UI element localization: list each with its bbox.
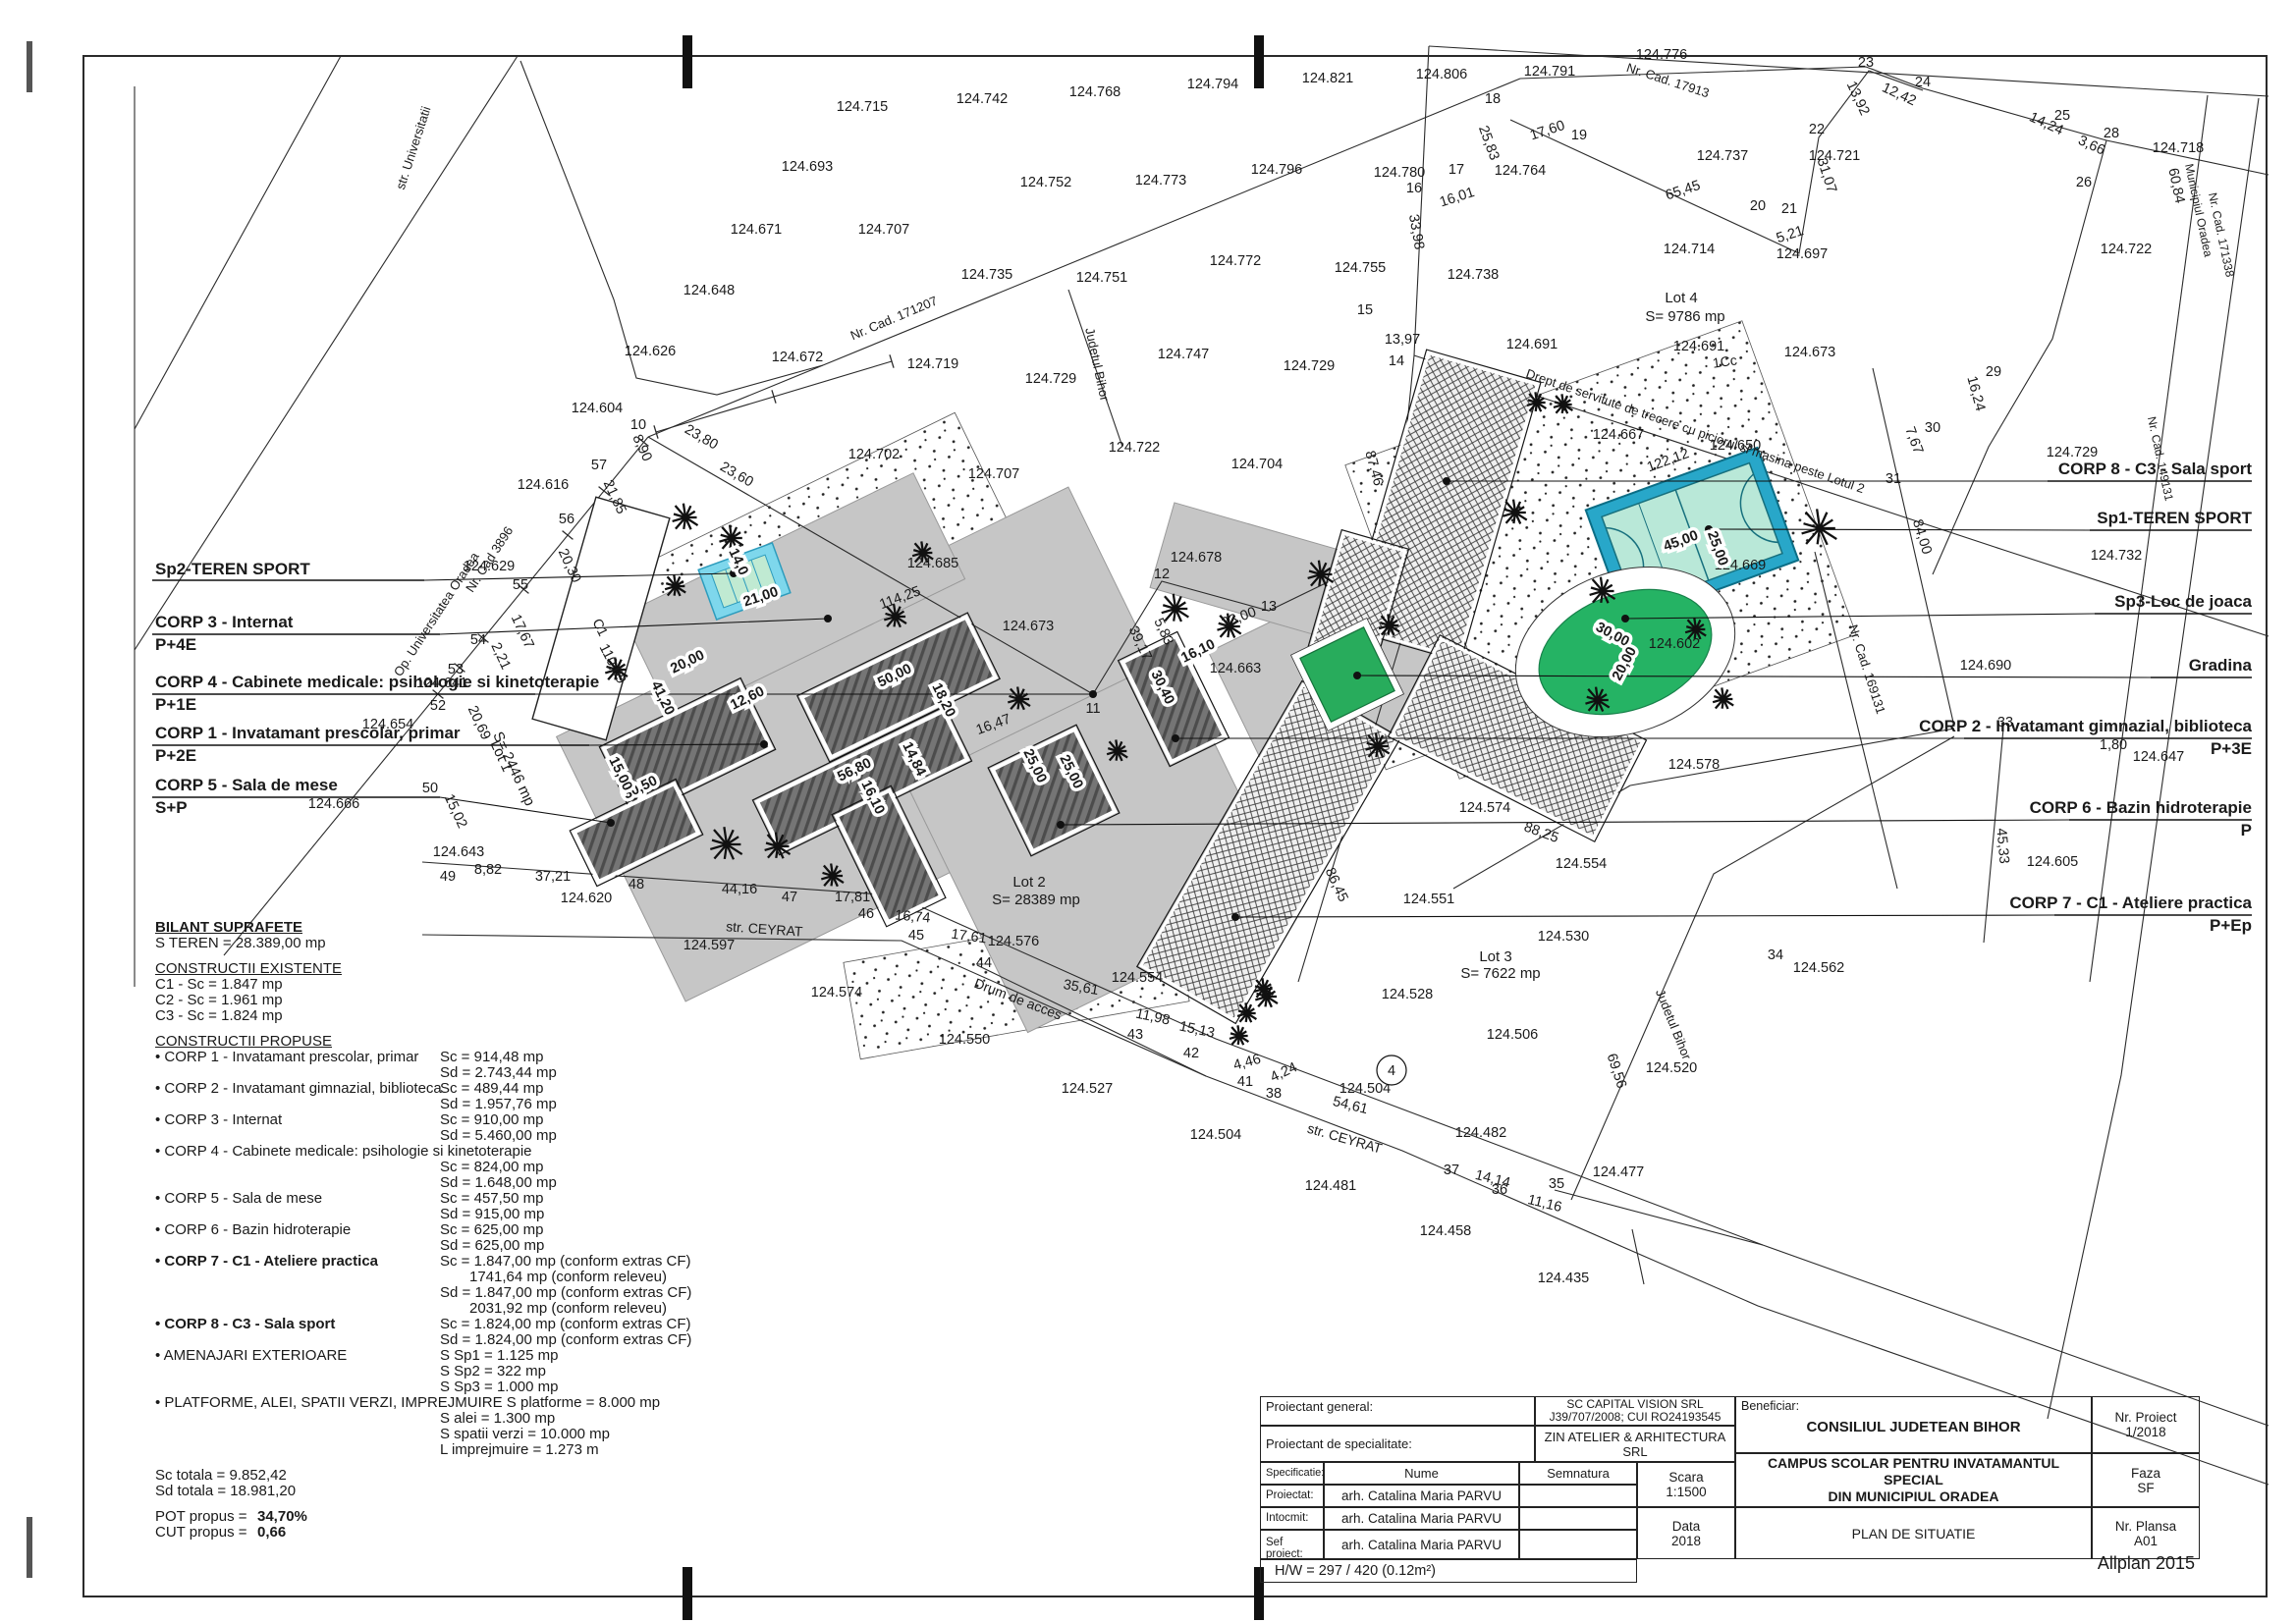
callout-label: CORP 5 - Sala de mese (155, 776, 338, 794)
callout-label: Gradina (2189, 656, 2253, 675)
boundary-point-label: 44 (976, 955, 992, 971)
callout-label: CORP 2 - Invatamant gimnazial, bibliotec… (1919, 717, 2252, 735)
dimension-label: 54,61 (1331, 1094, 1369, 1117)
leader-line (1235, 915, 2054, 917)
boundary-point-label: 56 (559, 512, 574, 527)
fold-mark (683, 1567, 692, 1620)
elevation-label: 124.764 (1495, 163, 1546, 179)
elevation-label: 124.722 (1109, 440, 1160, 456)
callout-sublabel: P+4E (155, 635, 196, 654)
elevation-label: 124.776 (1636, 47, 1687, 63)
dimension-label: 17,60 (1528, 118, 1566, 143)
scara-value: 1:1500 (1666, 1485, 1706, 1499)
elevation-label: 124.663 (1210, 661, 1261, 676)
callout-label: CORP 3 - Internat (155, 613, 294, 631)
elevation-label: 124.604 (572, 401, 623, 416)
dimension-label: 4,46 (1231, 1052, 1262, 1074)
callout-label: CORP 1 - Invatamant prescolar, primar (155, 724, 461, 742)
lot-label: S= 9786 mp (1645, 308, 1724, 325)
sef-proiect-name: arh. Catalina Maria PARVU (1324, 1530, 1519, 1559)
elevation-label: 124.602 (1649, 636, 1700, 652)
boundary-point-label: 11 (1085, 701, 1100, 717)
elevation-label: 124.691 (1673, 339, 1724, 354)
nr-proiect-cell: Nr. Proiect 1/2018 (2092, 1396, 2200, 1453)
boundary-point-label: 38 (1266, 1086, 1282, 1102)
elevation-label: 124.554 (1556, 856, 1607, 872)
lot-label: S= 28389 mp (992, 892, 1080, 908)
elevation-label: 124.506 (1487, 1027, 1538, 1043)
elevation-label: 124.772 (1210, 253, 1261, 269)
dimension-label: 44,16 (722, 882, 757, 897)
elevation-label: 124.806 (1416, 67, 1467, 82)
boundary-point-label: 46 (858, 906, 874, 922)
elevation-label: 124.707 (858, 222, 909, 238)
boundary-point-label: 53 (448, 662, 464, 677)
dimension-label: 7,67 (1901, 425, 1926, 457)
elevation-label: 124.576 (988, 934, 1039, 949)
elevation-label: 124.768 (1069, 84, 1121, 100)
survey-line (2090, 95, 2208, 982)
proiectant-spec-label: Proiectant de specialitate: (1260, 1426, 1535, 1462)
boundary-point-label: 19 (1571, 128, 1587, 143)
callout-sublabel: P (2241, 821, 2252, 839)
elevation-label: 124.752 (1020, 175, 1071, 190)
nr-proiect-value: 1/2018 (2125, 1425, 2165, 1439)
elevation-label: 124.704 (1231, 457, 1283, 472)
elevation-label: 124.719 (907, 356, 958, 372)
dimension-label: 15,13 (1177, 1018, 1216, 1041)
nr-proiect-label: Nr. Proiect (2114, 1410, 2176, 1425)
boundary-point-label: 13 (1261, 599, 1277, 615)
elevation-label: 124.641 (416, 676, 467, 691)
annotation-label: Judetul Bihor (1082, 326, 1113, 403)
survey-line (1815, 552, 1897, 889)
data-value: 2018 (1671, 1534, 1701, 1548)
nume-header: Nume (1324, 1462, 1519, 1485)
nr-plansa-label: Nr. Plansa (2115, 1519, 2176, 1534)
boundary-point-label: 35 (1549, 1176, 1564, 1192)
site-plan-drawing: Sp2-TEREN SPORTCORP 3 - InternatP+4ECORP… (0, 0, 2296, 1623)
specificatie-label: Specificatie: (1260, 1462, 1324, 1485)
dimension-label: 8,82 (474, 862, 502, 878)
elevation-label: 124.671 (731, 222, 782, 238)
nr-plansa-cell: Nr. Plansa A01 (2092, 1507, 2200, 1559)
leader-dot (1353, 672, 1361, 679)
semnatura-empty (1519, 1485, 1637, 1507)
allplan-watermark: Allplan 2015 (2003, 1553, 2195, 1574)
elevation-label: 124.729 (1284, 358, 1335, 374)
elevation-label: 124.780 (1374, 165, 1425, 181)
elevation-label: 124.504 (1190, 1127, 1241, 1143)
elevation-label: 124.562 (1793, 960, 1844, 976)
boundary-point-label: 34 (1768, 947, 1783, 963)
boundary-point-label: 33 (1997, 715, 2013, 730)
boundary-point-label: 17 (1449, 162, 1464, 178)
leader-dot (1443, 477, 1450, 485)
elevation-label: 124.773 (1135, 173, 1186, 189)
boundary-point-label: 37 (1444, 1163, 1459, 1178)
semnatura-header: Semnatura (1519, 1462, 1637, 1485)
elevation-label: 124.550 (939, 1032, 990, 1048)
boundary-point-label: 12 (1154, 567, 1170, 582)
boundary-point-label: 28 (2104, 126, 2119, 141)
annotation-label: Nr. Cad. 171207 (848, 293, 940, 343)
callout-sublabel: P+3E (2211, 739, 2252, 758)
beneficiar-name: CONSILIUL JUDETEAN BIHOR (1741, 1419, 2086, 1435)
fold-mark (1254, 35, 1264, 88)
dimension-label: 11,16 (1526, 1192, 1563, 1216)
elevation-label: 124.738 (1448, 267, 1499, 283)
elevation-label: 124.791 (1524, 64, 1575, 80)
boundary-point-label: 54 (470, 632, 486, 648)
proiectant-general-value: SC CAPITAL VISION SRL J39/707/2008; CUI … (1535, 1396, 1735, 1426)
boundary-point-label: 42 (1183, 1046, 1199, 1061)
boundary-point-label: 29 (1986, 364, 2001, 380)
boundary-point-label: 57 (591, 458, 607, 473)
annotation-label: Nr. Cad. 169131 (1846, 622, 1889, 716)
elevation-label: 124.578 (1668, 757, 1720, 773)
boundary-point-label: 23 (1858, 55, 1874, 71)
elevation-label: 124.527 (1062, 1081, 1113, 1097)
lot-label: S= 7622 mp (1460, 965, 1540, 982)
annotation-label: str. CEYRAT (1306, 1120, 1385, 1157)
company-reg: J39/707/2008; CUI RO24193545 (1550, 1411, 1722, 1424)
tree-icon (673, 504, 698, 530)
boundary-point-label: 18 (1485, 91, 1501, 107)
boundary-point-label: 15 (1357, 302, 1373, 318)
callout-sublabel: S+P (155, 798, 188, 817)
data-label: Data (1672, 1519, 1701, 1534)
elevation-label: 124.747 (1158, 347, 1209, 362)
elevation-label: 124.729 (1025, 371, 1076, 387)
elevation-label: 124.690 (1960, 658, 2011, 674)
annotation-label: Nr. Cad. 17913 (1624, 60, 1711, 100)
elevation-label: 124.654 (362, 717, 413, 732)
faza-value: SF (2137, 1481, 2154, 1495)
elevation-label: 124.729 (2047, 445, 2098, 460)
dimension-label: 37,21 (535, 869, 571, 885)
dimension-label: 16,74 (895, 907, 932, 926)
elevation-label: 124.482 (1455, 1125, 1506, 1141)
annotation-label: str. Universitatii (393, 104, 434, 191)
tree-icon (1713, 687, 1733, 709)
elevation-label: 124.821 (1302, 71, 1353, 86)
scan-artifact (27, 1517, 32, 1578)
boundary-point-label: 55 (513, 577, 528, 593)
elevation-label: 124.697 (1777, 246, 1828, 262)
elevation-label: 124.673 (1784, 345, 1835, 360)
boundary-point-label: 52 (430, 698, 446, 714)
elevation-label: 124.732 (2091, 548, 2142, 564)
boundary-point-label: 50 (422, 781, 438, 796)
boundary-point-label: 49 (440, 869, 456, 885)
boundary-point-label: 21 (1781, 201, 1797, 217)
scara-label: Scara (1668, 1470, 1703, 1485)
fold-mark (683, 35, 692, 88)
boundary-point-label: 24 (1915, 75, 1931, 90)
elevation-label: 124.643 (433, 844, 484, 860)
paper-size-label: H/W = 297 / 420 (0.12m²) (1260, 1559, 1637, 1583)
scan-artifact (27, 41, 32, 92)
elevation-label: 124.574 (811, 985, 862, 1001)
survey-line (135, 56, 341, 429)
elevation-label: 124.718 (2153, 140, 2204, 156)
dimension-label: 33,98 (1405, 213, 1427, 251)
sef-proiect-label: Sef proiect: (1260, 1530, 1324, 1559)
dimension-label: 86,45 (1322, 865, 1351, 904)
callout-label: CORP 4 - Cabinete medicale: psihologie s… (155, 673, 599, 691)
proiectat-name: arh. Catalina Maria PARVU (1324, 1485, 1519, 1507)
callout-sublabel: P+Ep (2210, 916, 2252, 935)
elevation-label: 124.742 (957, 91, 1008, 107)
elevation-label: 124.722 (2101, 242, 2152, 257)
proiectant-spec-value: ZIN ATELIER & ARHITECTURA SRL (1535, 1426, 1735, 1462)
boundary-point-label: 41 (1237, 1074, 1253, 1090)
lot-label: Lot 4 (1665, 290, 1697, 306)
leader-dot (824, 615, 832, 622)
boundary-point-label: 30 (1925, 420, 1941, 436)
survey-line (1414, 46, 1429, 355)
drawing-sheet: Sp2-TEREN SPORTCORP 3 - InternatP+4ECORP… (0, 0, 2296, 1623)
lot-label: Lot 3 (1479, 948, 1511, 965)
callout-label: Sp2-TEREN SPORT (155, 560, 310, 578)
leader-dot (1057, 821, 1065, 829)
leader-dot (607, 819, 615, 827)
boundary-tick (563, 531, 574, 540)
point-circle-label: 4 (1388, 1063, 1395, 1079)
elevation-label: 124.597 (683, 938, 735, 953)
intocmit-label: Intocmit: (1260, 1507, 1324, 1530)
boundary-point-label: 48 (629, 877, 644, 893)
dimension-label: 8,90 (629, 432, 654, 463)
data-cell: Data 2018 (1637, 1507, 1735, 1559)
elevation-label: 124.626 (625, 344, 676, 359)
elevation-label: 124.648 (683, 283, 735, 298)
elevation-label: 124.707 (968, 466, 1019, 482)
elevation-label: 124.672 (772, 350, 823, 365)
elevation-label: 124.477 (1593, 1164, 1644, 1180)
elevation-label: 124.737 (1697, 148, 1748, 164)
semnatura-empty (1519, 1530, 1637, 1559)
nr-plansa-value: A01 (2134, 1534, 2158, 1548)
annotation-label: Op. Universitatea Oradea (391, 549, 482, 678)
elevation-label: 124.481 (1305, 1178, 1356, 1194)
dimension-label: 45,33 (1993, 828, 2011, 865)
elevation-label: 124.667 (1593, 427, 1644, 443)
elevation-label: 124.794 (1187, 77, 1238, 92)
elevation-label: 124.735 (961, 267, 1012, 283)
elevation-label: 124.796 (1251, 162, 1302, 178)
callout-sublabel: P+1E (155, 695, 196, 714)
dimension-label: 16,24 (1963, 374, 1988, 412)
elevation-label: 124.666 (308, 796, 359, 812)
dimension-label: 1,80 (2100, 737, 2127, 753)
boundary-point-label: 14 (1389, 353, 1404, 369)
proiectant-general-label: Proiectant general: (1260, 1396, 1535, 1426)
dimension-label: 17,81 (835, 890, 870, 905)
elevation-label: 124.530 (1538, 929, 1589, 945)
dimension-label: 69,56 (1604, 1052, 1629, 1090)
leader-dot (1621, 615, 1629, 622)
elevation-label: 124.551 (1403, 892, 1454, 907)
elevation-label: 124.504 (1339, 1081, 1391, 1097)
elevation-label: 124.620 (561, 891, 612, 906)
elevation-label: 124.554 (1112, 970, 1163, 986)
project-title-line1: CAMPUS SCOLAR PENTRU INVATAMANTUL SPECIA… (1741, 1455, 2086, 1488)
elevation-label: 124.528 (1382, 987, 1433, 1002)
elevation-label: 124.435 (1538, 1271, 1589, 1286)
dimension-label: 15,02 (441, 791, 470, 831)
annotation-label: Judetul Bihor (1653, 987, 1695, 1062)
elevation-label: 124.647 (2133, 749, 2184, 765)
elevation-label: 124.605 (2027, 854, 2078, 870)
boundary-point-label: 22 (1809, 122, 1825, 137)
dimension-label: 23,80 (682, 422, 720, 454)
scara-cell: Scara 1:1500 (1637, 1462, 1735, 1507)
elevation-label: 124.702 (848, 447, 900, 462)
project-title-line2: DIN MUNICIPIUL ORADEA (1829, 1488, 1999, 1505)
dimension-label: 11,98 (1134, 1006, 1172, 1029)
faza-cell: Faza SF (2092, 1453, 2200, 1507)
semnatura-empty (1519, 1507, 1637, 1530)
leader-dot (1231, 913, 1239, 921)
dimension-label: 13,97 (1385, 332, 1420, 348)
dimension-label: 2,21 (487, 640, 513, 672)
boundary-point-label: 10 (630, 417, 646, 433)
faza-label: Faza (2131, 1466, 2160, 1481)
plansa-title-cell: PLAN DE SITUATIE (1735, 1507, 2092, 1559)
callout-label: CORP 6 - Bazin hidroterapie (2030, 798, 2252, 817)
survey-line (1555, 1190, 1763, 1245)
callout-left: CORP 5 - Sala de meseS+P (152, 776, 615, 827)
callout-label: CORP 7 - C1 - Ateliere practica (2009, 893, 2252, 912)
beneficiar-label: Beneficiar: (1741, 1399, 2086, 1413)
leader-dot (760, 740, 768, 748)
leader-dot (1172, 734, 1179, 742)
dimension-label: 25,83 (1475, 124, 1502, 163)
boundary-point-label: 26 (2076, 175, 2092, 190)
callout-label: Sp1-TEREN SPORT (2097, 509, 2252, 527)
lot-label: Lot 2 (1012, 874, 1045, 891)
survey-line (1873, 368, 1954, 727)
elevation-label: 124.685 (907, 556, 958, 571)
boundary-point-label: 45 (908, 928, 924, 944)
leader-dot (1089, 690, 1097, 698)
dimension-label: 4,24 (1268, 1059, 1299, 1085)
elevation-label: 124.520 (1646, 1060, 1697, 1076)
intocmit-name: arh. Catalina Maria PARVU (1324, 1507, 1519, 1530)
elevation-label: 124.691 (1506, 337, 1558, 352)
proiectat-label: Proiectat: (1260, 1485, 1324, 1507)
boundary-point-label: 31 (1886, 471, 1901, 487)
dimension-label: 23,60 (717, 460, 755, 491)
tree-icon (1230, 1025, 1248, 1045)
lot-label: S= 2446 mp (489, 730, 538, 809)
elevation-label: 124.755 (1335, 260, 1386, 276)
boundary-point-label: 16 (1406, 181, 1422, 196)
boundary-point-label: 47 (782, 890, 797, 905)
elevation-label: 124.714 (1664, 242, 1715, 257)
survey-line (1571, 736, 1954, 1200)
elevation-label: 124.715 (837, 99, 888, 115)
elevation-label: 124.616 (518, 477, 569, 493)
survey-line (1933, 140, 2106, 574)
dimension-label: 16,01 (1438, 185, 1476, 210)
boundary-point-label: 43 (1127, 1027, 1143, 1043)
elevation-label: 124.574 (1459, 800, 1510, 816)
boundary-point-label: 20 (1750, 198, 1766, 214)
callout-label: Sp3-Loc de joaca (2114, 592, 2252, 611)
callout-sublabel: P+2E (155, 746, 196, 765)
dimension-label: 84,00 (1909, 517, 1935, 556)
beneficiar-cell: Beneficiar: CONSILIUL JUDETEAN BIHOR (1735, 1396, 2092, 1453)
dimension-label: 20,69 (465, 703, 494, 742)
survey-line (1632, 1229, 1644, 1284)
elevation-label: 124.751 (1076, 270, 1127, 286)
elevation-label: 124.458 (1420, 1223, 1471, 1239)
elevation-label: 124.673 (1003, 619, 1054, 634)
project-title-cell: CAMPUS SCOLAR PENTRU INVATAMANTUL SPECIA… (1735, 1453, 2092, 1507)
elevation-label: 124.678 (1171, 550, 1222, 566)
elevation-label: 124.693 (782, 159, 833, 175)
dimension-label: 88,25 (1522, 820, 1561, 846)
